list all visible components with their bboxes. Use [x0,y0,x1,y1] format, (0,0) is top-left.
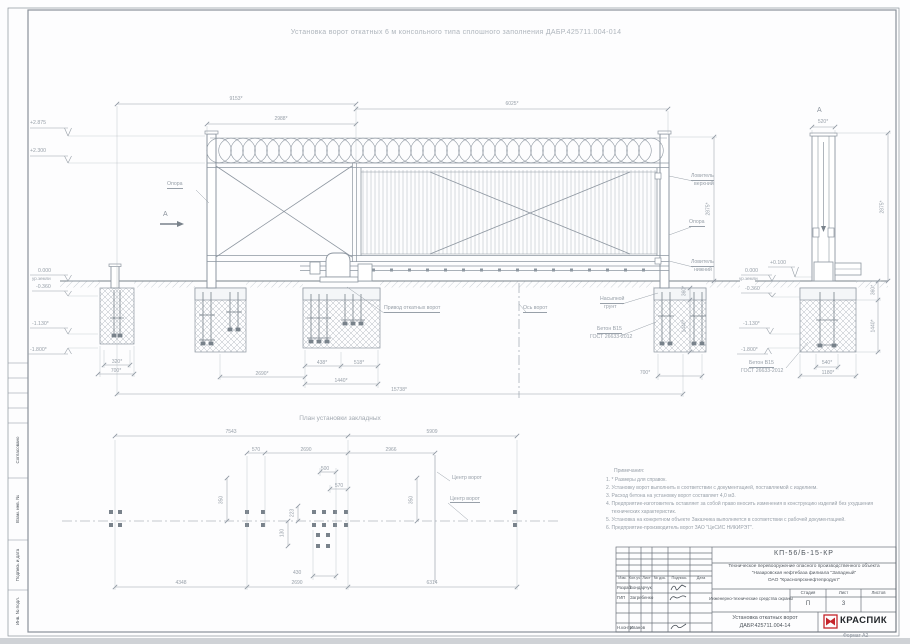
label-lovitel-nizh-1: Ловитель [691,260,714,267]
section-mark-minus-036: -0.360 [745,287,760,292]
dim-section-depth-top: 360* [872,285,877,295]
note-line: 3. Расход бетона на установку ворот сост… [606,494,736,499]
section-mark-left: А [163,211,168,218]
row-gip-label: ГИП [617,596,625,600]
page-frame [8,8,899,636]
plan-dim-2966: 2966 [385,448,396,453]
kraspik-logo-text: КРАСПИК [840,616,887,626]
dim-f1-inner: 320* [112,360,122,365]
plan-dim-2690-bottom: 2690 [291,581,302,586]
label-nasypnoy-1: Насыпной [600,297,624,304]
dim-f4-depth: 1440* [683,319,688,332]
section-a-mark: А [817,107,822,114]
dim-leaf: 6025* [505,102,518,107]
plan-dim-350-left: 350 [220,496,225,504]
plan-dim-223: 223 [291,509,296,517]
plan-dim-2690-top: 2690 [300,448,311,453]
section-a-view [810,133,861,281]
note-line: 6. Предприятие-производитель ворот ЗАО "… [606,526,754,531]
label-os-vorot: Ось ворот [523,306,547,313]
section-mark-ground: 0.000 [745,269,758,274]
plan-dim-430: 430 [293,571,301,576]
drawing-linework [0,0,910,638]
plan-dim-570-left: 570 [252,448,260,453]
subject: Инженерно-технические средства охраны [709,597,793,601]
section-mark-minus-180: -1.800* [741,348,758,353]
label-beton-1: Бетон В15 [597,327,622,334]
col-izm: Изм. [618,577,626,581]
project-line1: Техническое перевооружение опасного прои… [728,565,879,570]
label-nasypnoy-2: грунт [604,305,617,310]
doc-name-line1: Установка откатных ворот [732,616,797,621]
doc-number: КП-56/Б-15-КР [774,550,834,557]
section-mark-ground-note: ур.земли [739,277,758,282]
mark-minus-036: -0.360 [36,285,51,290]
section-cut-arrow [160,221,184,227]
project-line2: "Назаровская нефтебаза филиала "Западный… [752,572,856,577]
plan-dim-130: 130 [281,529,286,537]
page-bottom-edge [0,638,910,644]
dim-f2-to-f3: 2690* [255,372,268,377]
margin-soglasovano: Согласовано [16,436,21,463]
label-opora-right: Опора [689,220,705,227]
plan-dim-5909: 5909 [426,430,437,435]
mark-ground-note: ур.земли [32,277,51,282]
dim-section-depth: 1440* [872,319,877,332]
note-line: 5. Установка на конкретном объекте Заказ… [606,518,846,523]
gate-structure [109,131,671,288]
plan-dim-570-mid: 570 [335,484,343,489]
note-line: технических характеристик. [606,510,676,515]
col-n-dok: № док. [654,577,666,581]
label-lovitel-nizh-2: нижний [694,268,712,273]
plan-dim-4348: 4348 [175,581,186,586]
label-privod: Привод откатных ворот [384,306,440,313]
leader-lines [196,176,808,520]
signatures [670,585,686,629]
dim-overall-bottom: 15738* [391,388,407,393]
note-line: 2. Установку ворот выполнить в соответст… [606,486,818,491]
plan-dim-350-right: 350 [410,496,415,504]
label-lovitel-verh-2: верхний [694,182,714,187]
dim-f3-right: 518* [354,361,364,366]
stage-label: Стадия [801,591,816,595]
col-data: Дата [697,577,705,581]
dim-f3-left: 438* [317,361,327,366]
section-mark-plus-010: +0.100 [770,261,786,266]
mark-top-rail: +2.300 [30,149,46,154]
notes-title: Примечания: [614,469,644,474]
label-lovitel-verh-1: Ловитель [691,174,714,181]
plan-dim-500: 500 [321,467,329,472]
section-label-beton-1: Бетон В15 [749,361,774,368]
plan-label-center-1: Центр ворот [452,476,482,481]
drawing-title: Установка ворот откатных 6 м консольного… [291,29,622,36]
plan-label-center-2: Центр ворот [450,497,480,504]
section-label-beton-2: ГОСТ 26633-2012 [741,369,783,374]
plan-dim-7543: 7543 [225,430,236,435]
sheet-value: 3 [842,601,845,607]
col-podpis: Подпись [671,577,686,581]
project-line3: ОАО "Красноярскнефтепродукт" [768,579,840,584]
mark-ground: 0.000 [38,269,51,274]
drawing-sheet: Установка ворот откатных 6 м консольного… [0,0,910,638]
dim-f1-width: 700* [111,369,121,374]
dim-f4-depth-top: 360* [683,286,688,296]
dim-overall-top: 9153* [229,97,242,102]
dim-f3-width: 1440* [334,379,347,384]
sheets-label: Листов [872,591,886,595]
dim-section-width: 520* [818,120,828,125]
dim-section-base-width: 1180* [822,371,835,376]
dim-section-height: 2875* [881,200,886,213]
sheet-label: Лист [839,591,848,595]
note-line: 4. Предприятие-изготовитель оставляет за… [606,502,873,507]
row-nkontr-name: Иванов [630,626,645,630]
label-beton-2: ГОСТ 26633-2012 [590,335,632,340]
col-list: Лист [642,577,650,581]
stage-value: П [806,601,810,607]
dim-section-base-inner: 540* [822,361,832,366]
label-opora-left: Опора [167,182,183,189]
row-gip-name: Загребенко [630,596,653,600]
plan-dim-6314: 6314 [426,581,437,586]
dim-f4-width: 700* [640,371,650,376]
dim-height-right: 2875* [707,202,712,215]
margin-podpis-data: Подпись и дата [16,549,21,581]
dim-counterweight: 2988* [274,117,287,122]
margin-vzam-inv: Взам. инв. № [16,495,21,523]
ground [60,281,888,288]
margin-inv-podl: Инв. № подл. [16,597,21,625]
row-razrab-name: Бондарчук [630,586,652,590]
mark-minus-180: -1.800* [30,348,47,353]
plan-title: План установки закладных [299,416,381,423]
kraspik-logo-icon [824,615,837,628]
mark-minus-113: -1.130* [32,322,49,327]
note-line: 1. * Размеры для справок. [606,478,667,483]
mark-top-coil: +2.875 [30,121,46,126]
section-mark-minus-113: -1.130* [743,322,760,327]
doc-name-line2: ДАБР.425711.004-14 [740,624,791,629]
col-kol-uch: Кол.уч. [629,577,641,581]
